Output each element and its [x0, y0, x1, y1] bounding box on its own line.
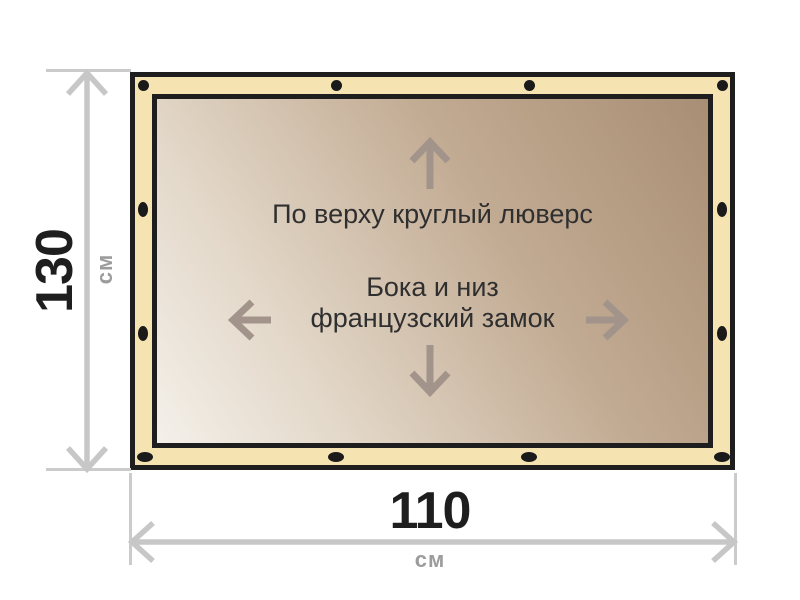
grommet-icon: [524, 80, 535, 91]
width-value: 110: [390, 481, 471, 541]
middle-annotation-line1: Бока и низ: [366, 272, 499, 303]
banner-size-diagram: По верху круглый люверс Бока и низ франц…: [0, 0, 800, 600]
grommet-icon: [331, 80, 342, 91]
top-annotation: По верху круглый люверс: [272, 199, 593, 230]
grommet-icon: [717, 202, 727, 217]
grommet-icon: [138, 326, 148, 341]
arrow-up-icon: [408, 135, 452, 191]
grommet-icon: [138, 80, 149, 91]
grommet-icon: [138, 202, 148, 217]
arrow-left-icon: [225, 298, 273, 342]
grommet-icon: [137, 452, 153, 462]
arrow-right-icon: [584, 298, 632, 342]
height-value: 130: [25, 229, 85, 313]
grommet-icon: [717, 80, 728, 91]
grommet-icon: [521, 452, 537, 462]
grommet-icon: [328, 452, 344, 462]
grommet-icon: [714, 452, 730, 462]
height-unit: см: [92, 254, 118, 285]
width-unit: см: [415, 547, 446, 573]
banner: По верху круглый люверс Бока и низ франц…: [130, 72, 735, 470]
grommet-icon: [717, 326, 727, 341]
middle-annotation-line2: французский замок: [311, 303, 555, 334]
arrow-down-icon: [408, 343, 452, 399]
